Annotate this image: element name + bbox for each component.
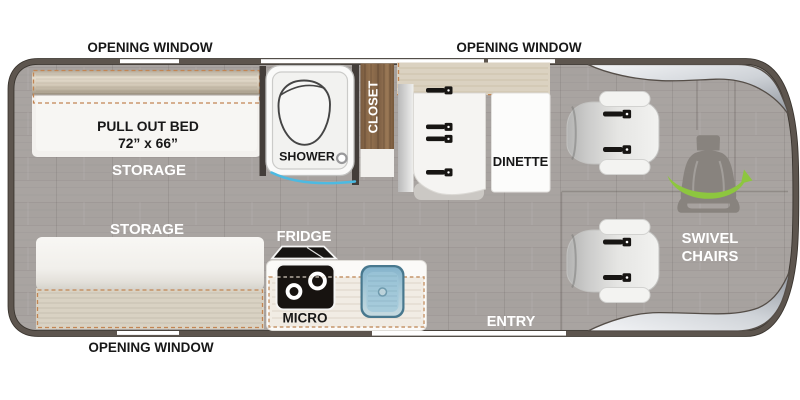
svg-text:FRIDGE: FRIDGE [277, 229, 332, 245]
svg-text:72” x 66”: 72” x 66” [118, 136, 178, 151]
svg-text:SHOWER: SHOWER [279, 150, 335, 164]
svg-text:ENTRY: ENTRY [487, 314, 536, 330]
svg-text:PULL OUT BED: PULL OUT BED [97, 119, 199, 134]
svg-text:CLOSET: CLOSET [366, 81, 381, 134]
svg-text:SWIVEL: SWIVEL [682, 231, 739, 247]
svg-text:STORAGE: STORAGE [110, 221, 184, 238]
svg-text:DINETTE: DINETTE [493, 154, 549, 169]
svg-text:CHAIRS: CHAIRS [682, 249, 739, 265]
svg-text:STORAGE: STORAGE [112, 162, 186, 179]
svg-text:OPENING WINDOW: OPENING WINDOW [88, 340, 214, 355]
svg-text:MICRO: MICRO [283, 311, 328, 326]
svg-text:OPENING WINDOW: OPENING WINDOW [87, 40, 213, 55]
svg-text:OPENING WINDOW: OPENING WINDOW [456, 40, 582, 55]
